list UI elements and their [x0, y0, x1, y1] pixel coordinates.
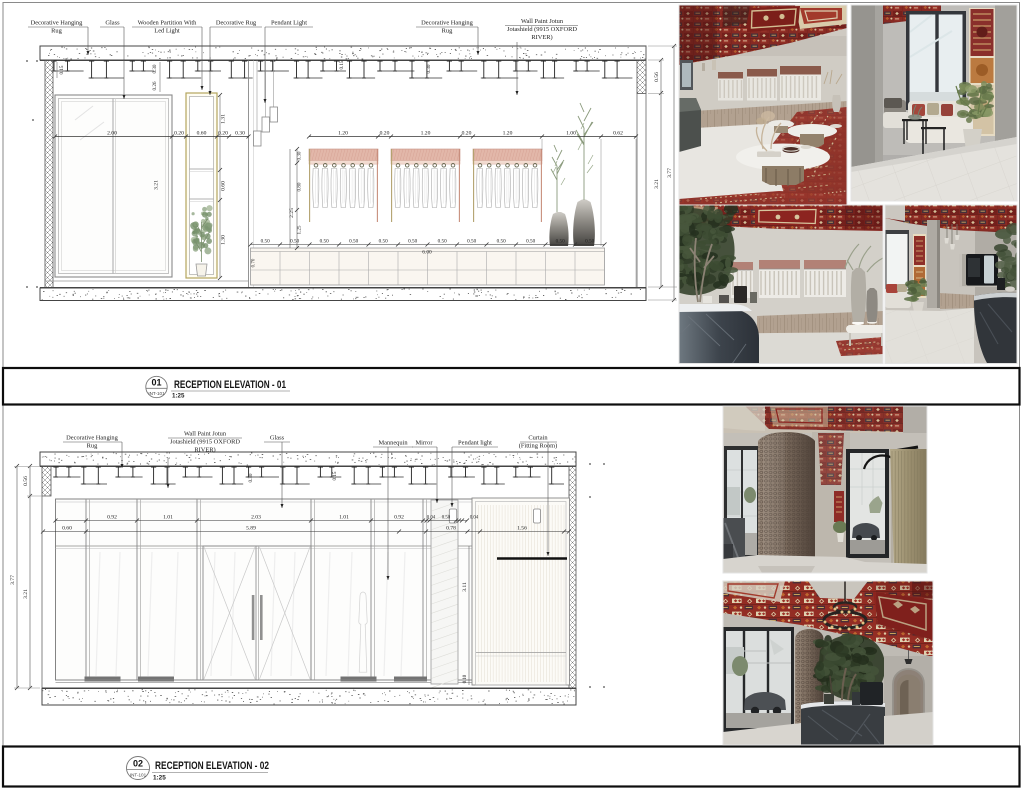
svg-text:0.70: 0.70	[252, 258, 257, 267]
svg-text:0.92: 0.92	[107, 515, 117, 521]
svg-text:0.30: 0.30	[235, 131, 245, 137]
svg-text:3.21: 3.21	[154, 180, 160, 190]
svg-text:Pendant light: Pendant light	[458, 440, 492, 447]
svg-text:0.30: 0.30	[248, 473, 254, 482]
svg-text:Wall Paint Jotun: Wall Paint Jotun	[184, 431, 227, 438]
svg-text:Pendant Light: Pendant Light	[271, 20, 307, 27]
svg-text:0.50: 0.50	[408, 239, 417, 245]
svg-text:Glass: Glass	[270, 435, 285, 442]
svg-text:0.20: 0.20	[174, 131, 184, 137]
svg-text:Rug: Rug	[87, 443, 98, 450]
svg-text:0.56: 0.56	[23, 476, 29, 486]
svg-text:0.60: 0.60	[197, 131, 207, 137]
svg-text:RIVER): RIVER)	[531, 34, 552, 41]
svg-text:3.77: 3.77	[10, 575, 16, 585]
svg-text:0.50: 0.50	[526, 239, 535, 245]
svg-text:5.89: 5.89	[246, 526, 256, 532]
svg-text:0.26: 0.26	[152, 81, 158, 90]
svg-text:0.04: 0.04	[427, 516, 436, 521]
svg-text:Wooden Partition With: Wooden Partition With	[138, 20, 198, 27]
svg-text:0.04: 0.04	[470, 516, 479, 521]
svg-text:Mannequin: Mannequin	[378, 440, 408, 447]
svg-text:0.20: 0.20	[380, 131, 390, 137]
svg-text:3.21: 3.21	[654, 179, 660, 189]
svg-text:Decorative Rug: Decorative Rug	[216, 20, 257, 27]
svg-text:Led Light: Led Light	[154, 28, 180, 35]
svg-text:INT-101: INT-101	[148, 391, 165, 396]
svg-text:3.77: 3.77	[667, 168, 673, 178]
svg-text:Mirror: Mirror	[415, 440, 433, 447]
svg-text:Wall Paint Jotun: Wall Paint Jotun	[521, 18, 564, 25]
svg-text:0.30: 0.30	[297, 151, 303, 160]
svg-text:RIVER): RIVER)	[194, 447, 215, 454]
svg-text:0.60: 0.60	[62, 526, 72, 532]
svg-text:0.60: 0.60	[221, 181, 227, 191]
svg-text:Decorative Hanging: Decorative Hanging	[66, 435, 118, 442]
svg-text:2.03: 2.03	[251, 515, 261, 521]
svg-text:3.21: 3.21	[23, 589, 29, 599]
svg-text:0.50: 0.50	[442, 516, 451, 521]
svg-text:INT-101: INT-101	[130, 773, 147, 778]
svg-text:0.92: 0.92	[394, 515, 404, 521]
svg-text:2.25: 2.25	[289, 208, 295, 218]
svg-text:0.15: 0.15	[332, 471, 338, 480]
svg-text:1.01: 1.01	[163, 515, 173, 521]
svg-text:0.50: 0.50	[320, 239, 329, 245]
svg-text:0.30: 0.30	[426, 64, 432, 73]
svg-text:0.50: 0.50	[556, 239, 565, 245]
svg-text:(Fitting Room): (Fitting Room)	[519, 443, 558, 450]
svg-text:Decorative Hanging: Decorative Hanging	[421, 20, 473, 27]
svg-text:Rug: Rug	[442, 28, 453, 35]
svg-text:Decorative Hanging: Decorative Hanging	[31, 20, 83, 27]
svg-text:0.50: 0.50	[585, 239, 594, 245]
svg-text:0.50: 0.50	[438, 239, 447, 245]
svg-text:0.50: 0.50	[290, 239, 299, 245]
svg-text:1.00: 1.00	[566, 131, 576, 137]
svg-text:RECEPTION ELEVATION - 01: RECEPTION ELEVATION - 01	[174, 379, 286, 391]
svg-text:0.78: 0.78	[446, 526, 456, 532]
svg-text:0.50: 0.50	[467, 239, 476, 245]
svg-text:Jotashield (9915 OXFORD: Jotashield (9915 OXFORD	[507, 26, 577, 33]
svg-text:1.25: 1.25	[297, 225, 303, 234]
svg-text:0.15: 0.15	[59, 65, 65, 74]
svg-text:0.50: 0.50	[379, 239, 388, 245]
svg-text:Curtain: Curtain	[528, 435, 548, 442]
svg-text:Jotashield (9915 OXFORD: Jotashield (9915 OXFORD	[170, 439, 240, 446]
svg-text:2.00: 2.00	[107, 131, 117, 137]
svg-text:Glass: Glass	[105, 20, 120, 27]
svg-text:02: 02	[133, 759, 143, 769]
svg-text:1:25: 1:25	[153, 775, 166, 782]
svg-text:0.50: 0.50	[261, 239, 270, 245]
svg-text:0.80: 0.80	[297, 182, 303, 191]
svg-text:1.31: 1.31	[221, 114, 227, 124]
svg-text:1.01: 1.01	[339, 515, 349, 521]
svg-text:1.30: 1.30	[221, 235, 227, 245]
svg-text:0.20: 0.20	[218, 131, 228, 137]
svg-text:0.30: 0.30	[152, 64, 158, 73]
svg-text:0.15: 0.15	[339, 60, 345, 69]
svg-text:1.20: 1.20	[421, 131, 431, 137]
svg-text:6.00: 6.00	[422, 250, 432, 256]
svg-text:0.20: 0.20	[462, 131, 472, 137]
svg-text:3.11: 3.11	[462, 582, 468, 592]
svg-text:0.10: 0.10	[463, 674, 468, 683]
svg-text:RECEPTION ELEVATION - 02: RECEPTION ELEVATION - 02	[155, 760, 269, 772]
svg-text:0.50: 0.50	[497, 239, 506, 245]
svg-text:1:25: 1:25	[172, 393, 185, 400]
svg-text:1.20: 1.20	[338, 131, 348, 137]
svg-text:Rug: Rug	[51, 28, 62, 35]
svg-text:1.56: 1.56	[517, 526, 527, 532]
svg-text:0.50: 0.50	[349, 239, 358, 245]
svg-text:01: 01	[151, 378, 161, 388]
svg-text:0.62: 0.62	[613, 131, 623, 137]
svg-text:1.20: 1.20	[503, 131, 513, 137]
svg-text:0.56: 0.56	[654, 72, 660, 82]
